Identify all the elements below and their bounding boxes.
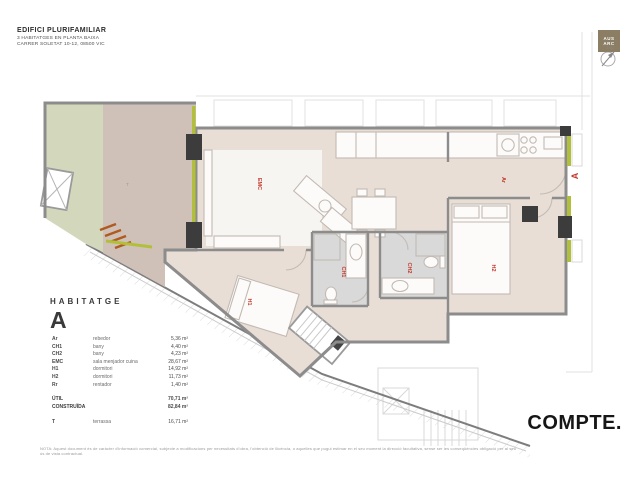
total-label: ÚTIL — [52, 396, 152, 404]
sheet-subtitle-2: CARRER SOLETAT 10-12, 08500 VIC — [17, 42, 106, 47]
legend-heading: HABITATGE — [50, 297, 190, 306]
legend-row: CH1 bany 4,40 m² — [52, 344, 188, 352]
entry-marker: A — [570, 172, 580, 179]
vanity-ch1 — [346, 234, 366, 278]
room-label-emc: EMC — [256, 178, 262, 190]
room-area: 4,40 m² — [152, 344, 188, 352]
total-row: CONSTRUÏDA 82,84 m² — [52, 404, 188, 412]
room-label-ch1: CH1 — [340, 266, 346, 277]
total-row: ÚTIL 70,71 m² — [52, 396, 188, 404]
room-code: H1 — [52, 366, 93, 374]
room-area: 4,23 m² — [152, 351, 188, 359]
room-label-ch2: CH2 — [406, 262, 412, 273]
room-name: dormitori — [93, 374, 152, 382]
window-sills — [572, 134, 582, 262]
dining-table — [352, 197, 396, 229]
legend-row: Rr rentador 1,40 m² — [52, 382, 188, 390]
kitchen-counter — [336, 132, 566, 158]
pillow — [482, 206, 507, 218]
chair — [375, 189, 385, 196]
terrace-name: terrassa — [93, 419, 152, 427]
room-label-h2: H2 — [490, 264, 496, 271]
total-value: 82,84 m² — [152, 404, 188, 412]
unit-letter: A — [50, 309, 190, 331]
disclaimer-note: NOTA: Aquest document és de caràcter d'i… — [40, 446, 518, 456]
north-arrow-icon — [601, 52, 615, 66]
washer-cabinet — [497, 134, 519, 156]
sheet-subtitle-1: 3 HABITATGES EN PLANTA BAIXA — [17, 36, 106, 41]
title-block: EDIFICI PLURIFAMILIAR 3 HABITATGES EN PL… — [17, 27, 106, 47]
legend-row: CH2 bany 4,23 m² — [52, 351, 188, 359]
legend-row: EMC sala menjador cuina 28,67 m² — [52, 359, 188, 367]
legend-rows: Ar rebedor 5,36 m² CH1 bany 4,40 m² CH2 … — [52, 336, 190, 389]
legend: HABITATGE A Ar rebedor 5,36 m² CH1 bany … — [50, 297, 190, 426]
room-label-ar: Ar — [500, 177, 506, 184]
room-code: H2 — [52, 374, 93, 382]
room-code: CH2 — [52, 351, 93, 359]
coffee-table — [319, 200, 331, 212]
sideboard — [214, 236, 280, 248]
cistern-ch2 — [440, 256, 445, 268]
room-area: 11,73 m² — [152, 374, 188, 382]
toilet-ch1 — [326, 287, 337, 301]
legend-terrace-row: T terrassa 16,71 m² — [52, 419, 190, 427]
room-name: dormitori — [93, 366, 152, 374]
room-area: 28,67 m² — [152, 359, 188, 367]
sheet-title: EDIFICI PLURIFAMILIAR — [17, 27, 106, 34]
room-area: 5,36 m² — [152, 336, 188, 344]
toilet-ch2 — [424, 257, 438, 268]
tv-unit — [204, 150, 212, 236]
brand-logo: COMPTE. — [527, 412, 622, 435]
legend-totals: ÚTIL 70,71 m² CONSTRUÏDA 82,84 m² — [52, 396, 190, 412]
terrace-label: T — [126, 182, 129, 187]
chair — [357, 189, 367, 196]
room-label-h1: H1 — [246, 298, 252, 305]
room-code: Ar — [52, 336, 93, 344]
room-code: CH1 — [52, 344, 93, 352]
terrace-area: 16,71 m² — [152, 419, 188, 427]
room-name: bany — [93, 351, 152, 359]
room-name: bany — [93, 344, 152, 352]
terrace-code: T — [52, 419, 93, 427]
cistern-ch1 — [324, 300, 337, 304]
room-code: Rr — [52, 382, 93, 390]
room-code: EMC — [52, 359, 93, 367]
room-name: sala menjador cuina — [93, 359, 152, 367]
room-area: 1,40 m² — [152, 382, 188, 390]
total-value: 70,71 m² — [152, 396, 188, 404]
room-name: rebedor — [93, 336, 152, 344]
legend-row: H1 dormitori 14,92 m² — [52, 366, 188, 374]
pillow — [454, 206, 479, 218]
room-name: rentador — [93, 382, 152, 390]
legend-row: Ar rebedor 5,36 m² — [52, 336, 188, 344]
room-area: 14,92 m² — [152, 366, 188, 374]
total-label: CONSTRUÏDA — [52, 404, 152, 412]
scale-label: 1:50 — [596, 46, 624, 50]
legend-row: H2 dormitori 11,73 m² — [52, 374, 188, 382]
